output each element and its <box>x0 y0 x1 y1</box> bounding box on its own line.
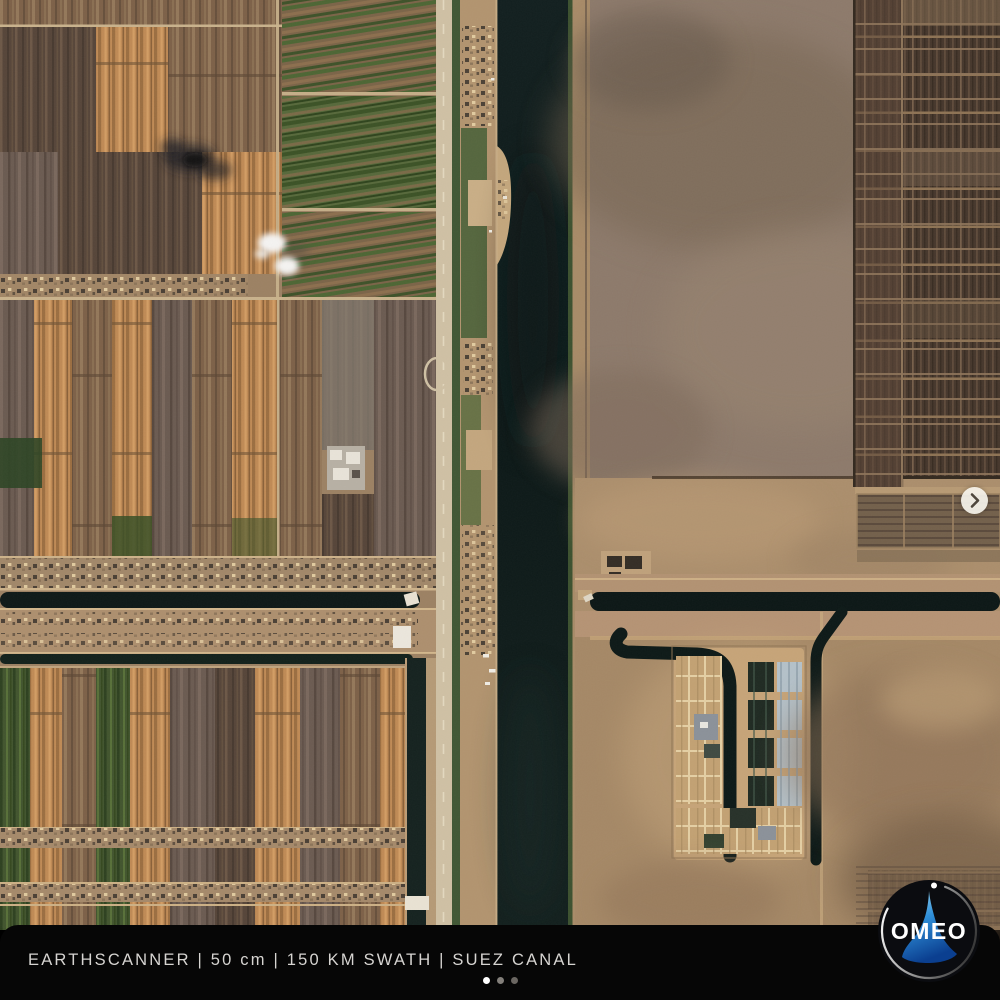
satellite-image <box>0 0 1000 1000</box>
carousel-dots <box>0 977 1000 984</box>
carousel-dot[interactable] <box>511 977 518 984</box>
film-grain <box>0 0 1000 928</box>
logo-text: OMEO <box>891 918 967 944</box>
omeo-logo: OMEO <box>877 879 981 983</box>
logo-orbit-dot <box>931 883 937 889</box>
caption-bar: EARTHSCANNER | 50 cm | 150 KM SWATH | SU… <box>0 925 1000 1000</box>
carousel-dot[interactable] <box>497 977 504 984</box>
carousel-next-button[interactable] <box>961 487 988 514</box>
post-viewer: EARTHSCANNER | 50 cm | 150 KM SWATH | SU… <box>0 0 1000 1000</box>
caption-text: EARTHSCANNER | 50 cm | 150 KM SWATH | SU… <box>0 925 1000 970</box>
chevron-right-icon <box>961 487 988 514</box>
carousel-dot[interactable] <box>483 977 490 984</box>
